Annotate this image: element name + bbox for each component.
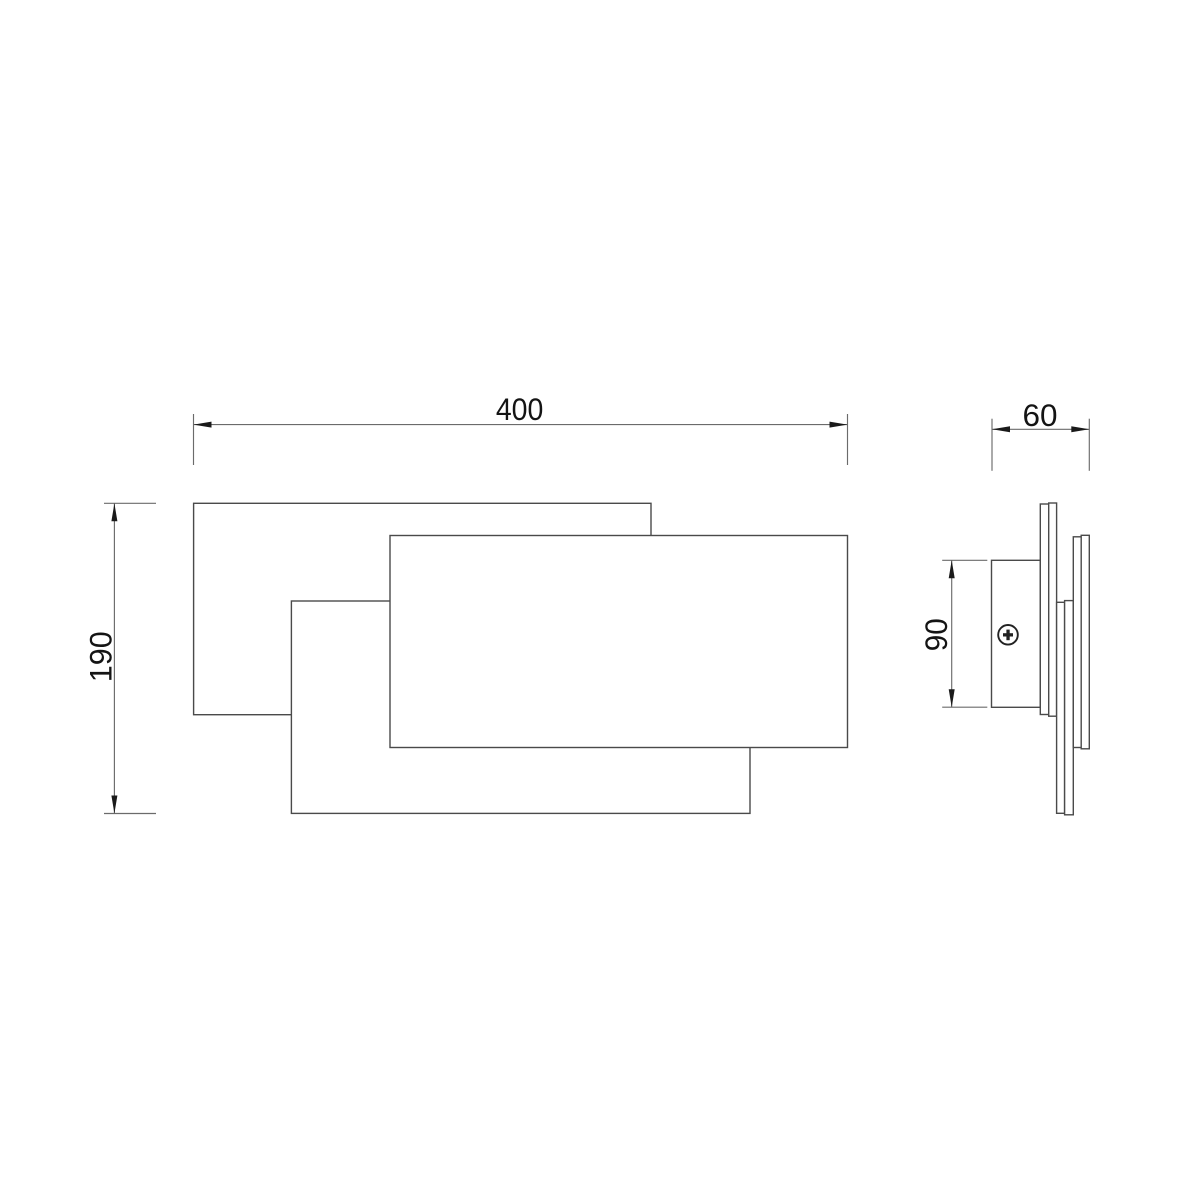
svg-text:190: 190 [82,631,118,682]
svg-text:90: 90 [918,618,954,651]
svg-text:60: 60 [1023,397,1058,433]
svg-text:400: 400 [496,391,544,427]
